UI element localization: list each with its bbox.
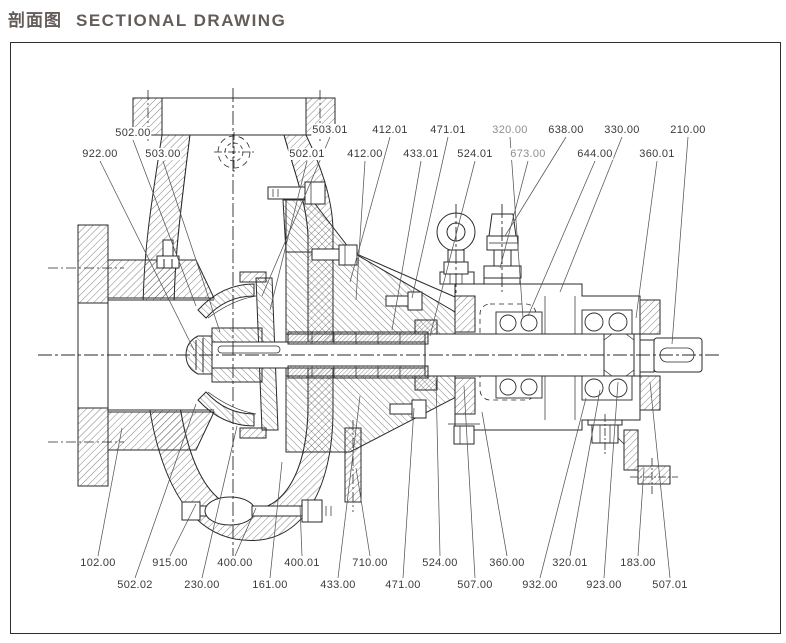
part-label-360-00: 360.00 — [488, 557, 525, 569]
part-label-932-00: 932.00 — [521, 579, 558, 591]
support-foot — [610, 430, 678, 496]
leader-710-00 — [356, 468, 370, 556]
part-label-400-01: 400.01 — [283, 557, 320, 569]
part-label-507-00: 507.00 — [456, 579, 493, 591]
part-label-433-01: 433.01 — [402, 148, 439, 160]
part-label-320-01: 320.01 — [551, 557, 588, 569]
part-label-102-00: 102.00 — [79, 557, 116, 569]
part-label-230-00: 230.00 — [183, 579, 220, 591]
part-label-330-00: 330.00 — [603, 124, 640, 136]
part-label-320-00: 320.00 — [491, 124, 528, 136]
part-label-923-00: 923.00 — [585, 579, 622, 591]
part-label-673-00: 673.00 — [509, 148, 546, 160]
oil-drain-plug — [588, 414, 622, 456]
part-label-433-00: 433.00 — [319, 579, 356, 591]
part-label-915-00: 915.00 — [151, 557, 188, 569]
leader-360-00 — [482, 412, 507, 556]
part-label-210-00: 210.00 — [669, 124, 706, 136]
leader-471-00 — [403, 408, 414, 578]
part-label-412-01: 412.01 — [371, 124, 408, 136]
leader-210-00 — [672, 137, 688, 344]
leader-360-01 — [636, 161, 657, 318]
part-label-502-02: 502.02 — [116, 579, 153, 591]
part-label-503-01: 503.01 — [311, 124, 348, 136]
part-label-161-00: 161.00 — [251, 579, 288, 591]
grease-fitting — [484, 214, 521, 278]
leader-330-00 — [560, 137, 622, 292]
part-label-524-01: 524.01 — [456, 148, 493, 160]
part-label-710-00: 710.00 — [351, 557, 388, 569]
part-label-503-00: 503.00 — [144, 148, 181, 160]
part-label-638-00: 638.00 — [547, 124, 584, 136]
part-label-412-00: 412.00 — [346, 148, 383, 160]
part-label-524-00: 524.00 — [421, 557, 458, 569]
part-label-183-00: 183.00 — [619, 557, 656, 569]
part-label-360-01: 360.01 — [638, 148, 675, 160]
screenshot-root: 剖面图 SECTIONAL DRAWING — [0, 0, 786, 643]
sectional-drawing — [0, 0, 786, 643]
part-label-502-01: 502.01 — [288, 148, 325, 160]
part-label-507-01: 507.01 — [651, 579, 688, 591]
part-label-922-00: 922.00 — [81, 148, 118, 160]
part-label-471-01: 471.01 — [429, 124, 466, 136]
part-label-644-00: 644.00 — [576, 148, 613, 160]
part-label-502-00: 502.00 — [114, 127, 151, 139]
part-label-471-00: 471.00 — [384, 579, 421, 591]
part-label-400-00: 400.00 — [216, 557, 253, 569]
